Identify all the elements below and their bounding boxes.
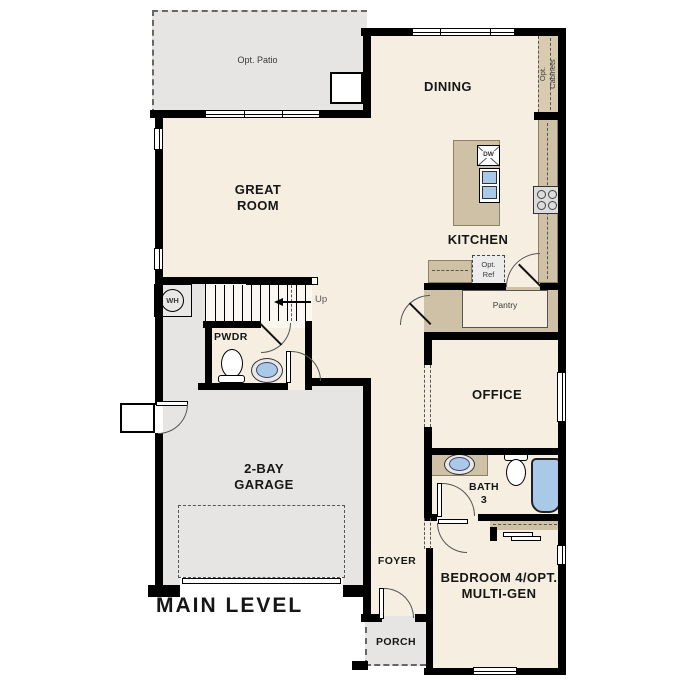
floor-plan: DW Opt. Ref WH <box>0 0 687 687</box>
wall-pantry-top-right <box>540 283 566 290</box>
wall-office-bottom <box>424 448 566 455</box>
water-heater: WH <box>161 289 184 312</box>
window-glass-line <box>206 114 319 115</box>
pwdr-label: PWDR <box>214 331 264 344</box>
level-title: MAIN LEVEL <box>156 594 303 618</box>
dining-label: DINING <box>400 79 496 95</box>
wall-closet-stub <box>490 527 497 541</box>
opt-cabinets-label: Opt. Cabinets <box>538 44 560 104</box>
stair-tread <box>242 285 243 321</box>
wall-patio-dining-divider <box>363 28 371 118</box>
wall-bath-bottom <box>478 514 566 521</box>
closet-bypass-door-2 <box>511 536 541 541</box>
bath3-label-line1: BATH <box>466 481 502 494</box>
dining-window <box>412 28 515 36</box>
window-mullion <box>490 29 491 35</box>
bath-toilet-bowl <box>506 459 526 486</box>
window-glass-line <box>474 671 516 672</box>
water-heater-label: WH <box>162 296 183 305</box>
stairs-arrow-line <box>283 301 311 303</box>
dishwasher: DW <box>477 145 500 166</box>
wall-optcab-bottom <box>534 112 566 120</box>
garage-label-line2: GARAGE <box>194 477 334 493</box>
closet-shelf-dash <box>493 524 557 525</box>
stair-tread <box>269 285 270 321</box>
wall-left-4 <box>155 433 163 597</box>
window-glass-line <box>159 129 160 149</box>
wall-pantry-top-left <box>424 283 506 290</box>
window-glass-line <box>562 373 563 421</box>
wall-bedroom-bottom-right <box>517 668 566 675</box>
wall-greatroom-bottom <box>155 277 312 284</box>
window-mullion <box>440 29 441 35</box>
window-glass-line <box>562 546 563 564</box>
garage-door-panel <box>182 578 341 584</box>
wall-bedroom-bottom-left <box>424 668 473 675</box>
peninsula-dash <box>432 270 468 271</box>
wall-right-2 <box>558 422 566 547</box>
garage-floor-topright <box>312 385 363 395</box>
opt-cabinets-label-line2: Cabinets <box>548 44 558 104</box>
office-opening-left <box>424 365 425 427</box>
burner-icon <box>548 190 557 199</box>
bedroom-bottom-window <box>473 667 517 675</box>
patio-sliding-door <box>205 110 320 118</box>
wall-porch-top-right <box>415 614 432 622</box>
garage-side-door-landing <box>120 403 155 433</box>
wall-foyer-left <box>363 385 371 618</box>
stairs-up-label: Up <box>315 294 327 305</box>
wall-garage-bottom-right <box>343 585 371 597</box>
kitchen-peninsula-counter <box>428 260 472 283</box>
stair-tread <box>251 285 252 321</box>
opt-cabinets-label-line1: Opt. <box>538 44 548 104</box>
opt-ref-label-1: Opt. <box>473 260 504 269</box>
opt-ref-label-2: Ref <box>473 270 504 279</box>
greatroom-window-upper <box>154 128 163 150</box>
porch-label: PORCH <box>366 636 426 649</box>
office-opening-right <box>430 365 431 427</box>
stair-tread <box>287 285 288 321</box>
office-window <box>557 372 566 422</box>
bath3-label-line2: 3 <box>466 494 502 507</box>
bedroom-closet-shelf <box>490 521 560 530</box>
garage-label-line1: 2-BAY <box>194 461 334 477</box>
stair-tread <box>305 285 306 321</box>
window-mullion <box>282 111 283 117</box>
island-sink-basin-top <box>482 171 497 184</box>
bedroom-side-window <box>557 545 566 565</box>
pantry-label: Pantry <box>462 300 548 310</box>
greatroom-window-lower <box>154 248 163 270</box>
stairs-dash-line <box>291 285 292 321</box>
window-glass-line <box>413 32 514 33</box>
toilet-bowl <box>221 349 243 378</box>
burner-icon <box>537 201 546 210</box>
stair-tread <box>233 285 234 321</box>
wall-left-2 <box>155 150 163 250</box>
wall-pwdr-bottom <box>198 383 288 390</box>
wall-office-top <box>424 332 566 340</box>
pwdr-sink-basin <box>256 362 278 378</box>
wall-left-3 <box>155 270 163 405</box>
stair-tread <box>224 285 225 321</box>
floor-hall-foyer <box>368 283 430 622</box>
bedroom4-label-line1: BEDROOM 4/OPT. <box>425 570 573 586</box>
wall-bedroom-left <box>426 548 433 675</box>
dishwasher-label: DW <box>480 151 497 158</box>
wall-porch-corner-stub <box>352 661 368 670</box>
bath-sink-basin <box>449 457 470 471</box>
patio-feature-box <box>330 72 363 104</box>
stair-tread <box>260 285 261 321</box>
foyer-opening-right <box>430 518 431 549</box>
bedroom4-label-line2: MULTI-GEN <box>425 586 573 602</box>
foyer-opening-left <box>424 518 425 549</box>
window-mullion <box>244 111 245 117</box>
foyer-label: FOYER <box>367 555 427 568</box>
stairs-arrow-head-icon <box>274 298 283 306</box>
stair-tread <box>215 285 216 321</box>
window-glass-line <box>159 249 160 269</box>
toilet-tank <box>218 375 245 383</box>
wall-hall-bath <box>424 427 432 518</box>
burner-icon <box>548 201 557 210</box>
kitchen-label: KITCHEN <box>428 232 528 248</box>
wall-pwdr-left <box>205 321 212 390</box>
stair-tread <box>296 285 297 321</box>
island-sink-basin-bottom <box>482 186 497 199</box>
garage-door-path <box>178 505 345 578</box>
great-room-label-line1: GREAT <box>208 182 308 198</box>
great-room-label-line2: ROOM <box>208 198 308 214</box>
wall-hall-office-upper <box>424 332 432 365</box>
burner-icon <box>537 190 546 199</box>
wall-left-1 <box>155 110 163 130</box>
office-label: OFFICE <box>447 387 547 403</box>
opt-patio-label: Opt. Patio <box>190 55 325 65</box>
bathtub <box>531 458 561 513</box>
